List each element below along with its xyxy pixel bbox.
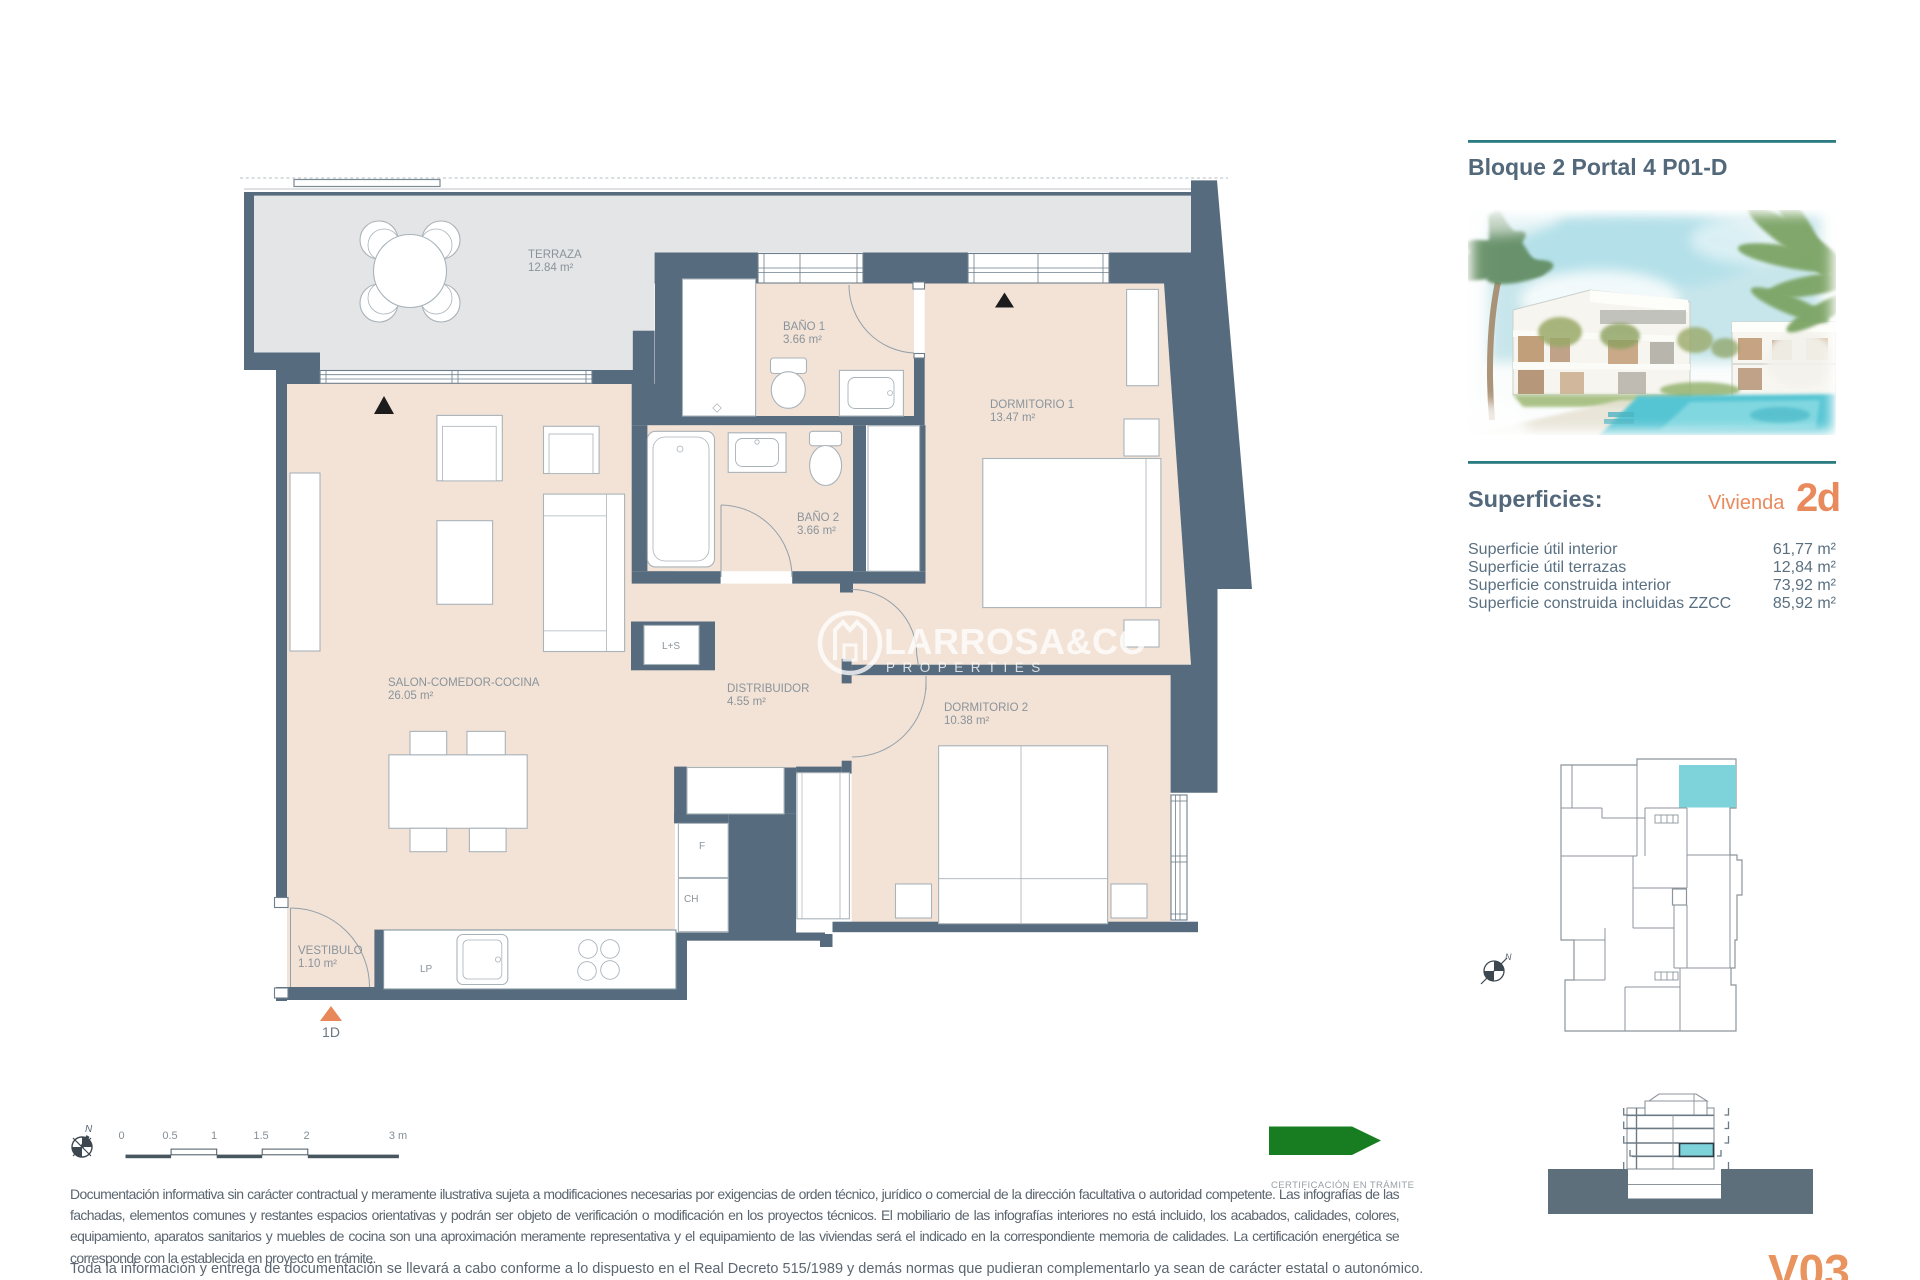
svg-text:Superficie útil interior: Superficie útil interior bbox=[1468, 541, 1618, 558]
svg-text:1: 1 bbox=[211, 1130, 217, 1142]
svg-text:10.38 m²: 10.38 m² bbox=[944, 715, 990, 727]
svg-text:26.05 m²: 26.05 m² bbox=[388, 690, 434, 702]
svg-text:2d: 2d bbox=[1796, 476, 1840, 520]
svg-text:SALON-COMEDOR-COCINA: SALON-COMEDOR-COCINA bbox=[388, 677, 540, 689]
svg-text:LARROSA&CO: LARROSA&CO bbox=[884, 621, 1147, 662]
svg-text:Superficie útil terrazas: Superficie útil terrazas bbox=[1468, 559, 1626, 576]
svg-text:Superficie construida incluida: Superficie construida incluidas ZZCC bbox=[1468, 595, 1731, 612]
svg-text:N: N bbox=[85, 1124, 93, 1135]
svg-text:1D: 1D bbox=[322, 1024, 340, 1040]
svg-text:4.55 m²: 4.55 m² bbox=[727, 696, 766, 708]
svg-text:0: 0 bbox=[118, 1130, 124, 1142]
svg-text:Superficies:: Superficies: bbox=[1468, 486, 1603, 512]
svg-text:Superficie construida interior: Superficie construida interior bbox=[1468, 577, 1671, 594]
svg-text:N: N bbox=[1505, 952, 1512, 962]
svg-text:BAÑO 2: BAÑO 2 bbox=[797, 511, 839, 524]
svg-text:85,92 m²: 85,92 m² bbox=[1773, 595, 1837, 612]
svg-text:PROPERTIES: PROPERTIES bbox=[886, 660, 1048, 675]
svg-text:BAÑO 1: BAÑO 1 bbox=[783, 320, 825, 333]
svg-text:1.10 m²: 1.10 m² bbox=[298, 958, 337, 970]
svg-text:12.84 m²: 12.84 m² bbox=[528, 262, 574, 274]
svg-text:VESTIBULO: VESTIBULO bbox=[298, 945, 363, 957]
svg-text:13.47 m²: 13.47 m² bbox=[990, 412, 1036, 424]
svg-text:2: 2 bbox=[303, 1130, 309, 1142]
svg-text:LP: LP bbox=[420, 964, 433, 975]
svg-text:1.5: 1.5 bbox=[253, 1130, 268, 1142]
svg-text:3.66 m²: 3.66 m² bbox=[797, 525, 836, 537]
svg-text:F: F bbox=[699, 841, 705, 852]
svg-text:TERRAZA: TERRAZA bbox=[528, 249, 582, 261]
svg-text:L+S: L+S bbox=[662, 641, 680, 652]
svg-text:73,92 m²: 73,92 m² bbox=[1773, 577, 1837, 594]
svg-text:V03: V03 bbox=[1768, 1245, 1850, 1280]
svg-text:0.5: 0.5 bbox=[162, 1130, 177, 1142]
svg-text:3.66 m²: 3.66 m² bbox=[783, 334, 822, 346]
svg-text:Vivienda: Vivienda bbox=[1708, 492, 1785, 514]
svg-text:61,77 m²: 61,77 m² bbox=[1773, 541, 1837, 558]
svg-text:DISTRIBUIDOR: DISTRIBUIDOR bbox=[727, 683, 809, 695]
svg-text:Bloque 2 Portal 4 P01-D: Bloque 2 Portal 4 P01-D bbox=[1468, 154, 1727, 180]
svg-text:3 m: 3 m bbox=[389, 1130, 407, 1142]
svg-text:DORMITORIO 2: DORMITORIO 2 bbox=[944, 702, 1028, 714]
svg-text:DORMITORIO 1: DORMITORIO 1 bbox=[990, 399, 1074, 411]
svg-text:CH: CH bbox=[684, 894, 698, 905]
svg-text:12,84 m²: 12,84 m² bbox=[1773, 559, 1837, 576]
